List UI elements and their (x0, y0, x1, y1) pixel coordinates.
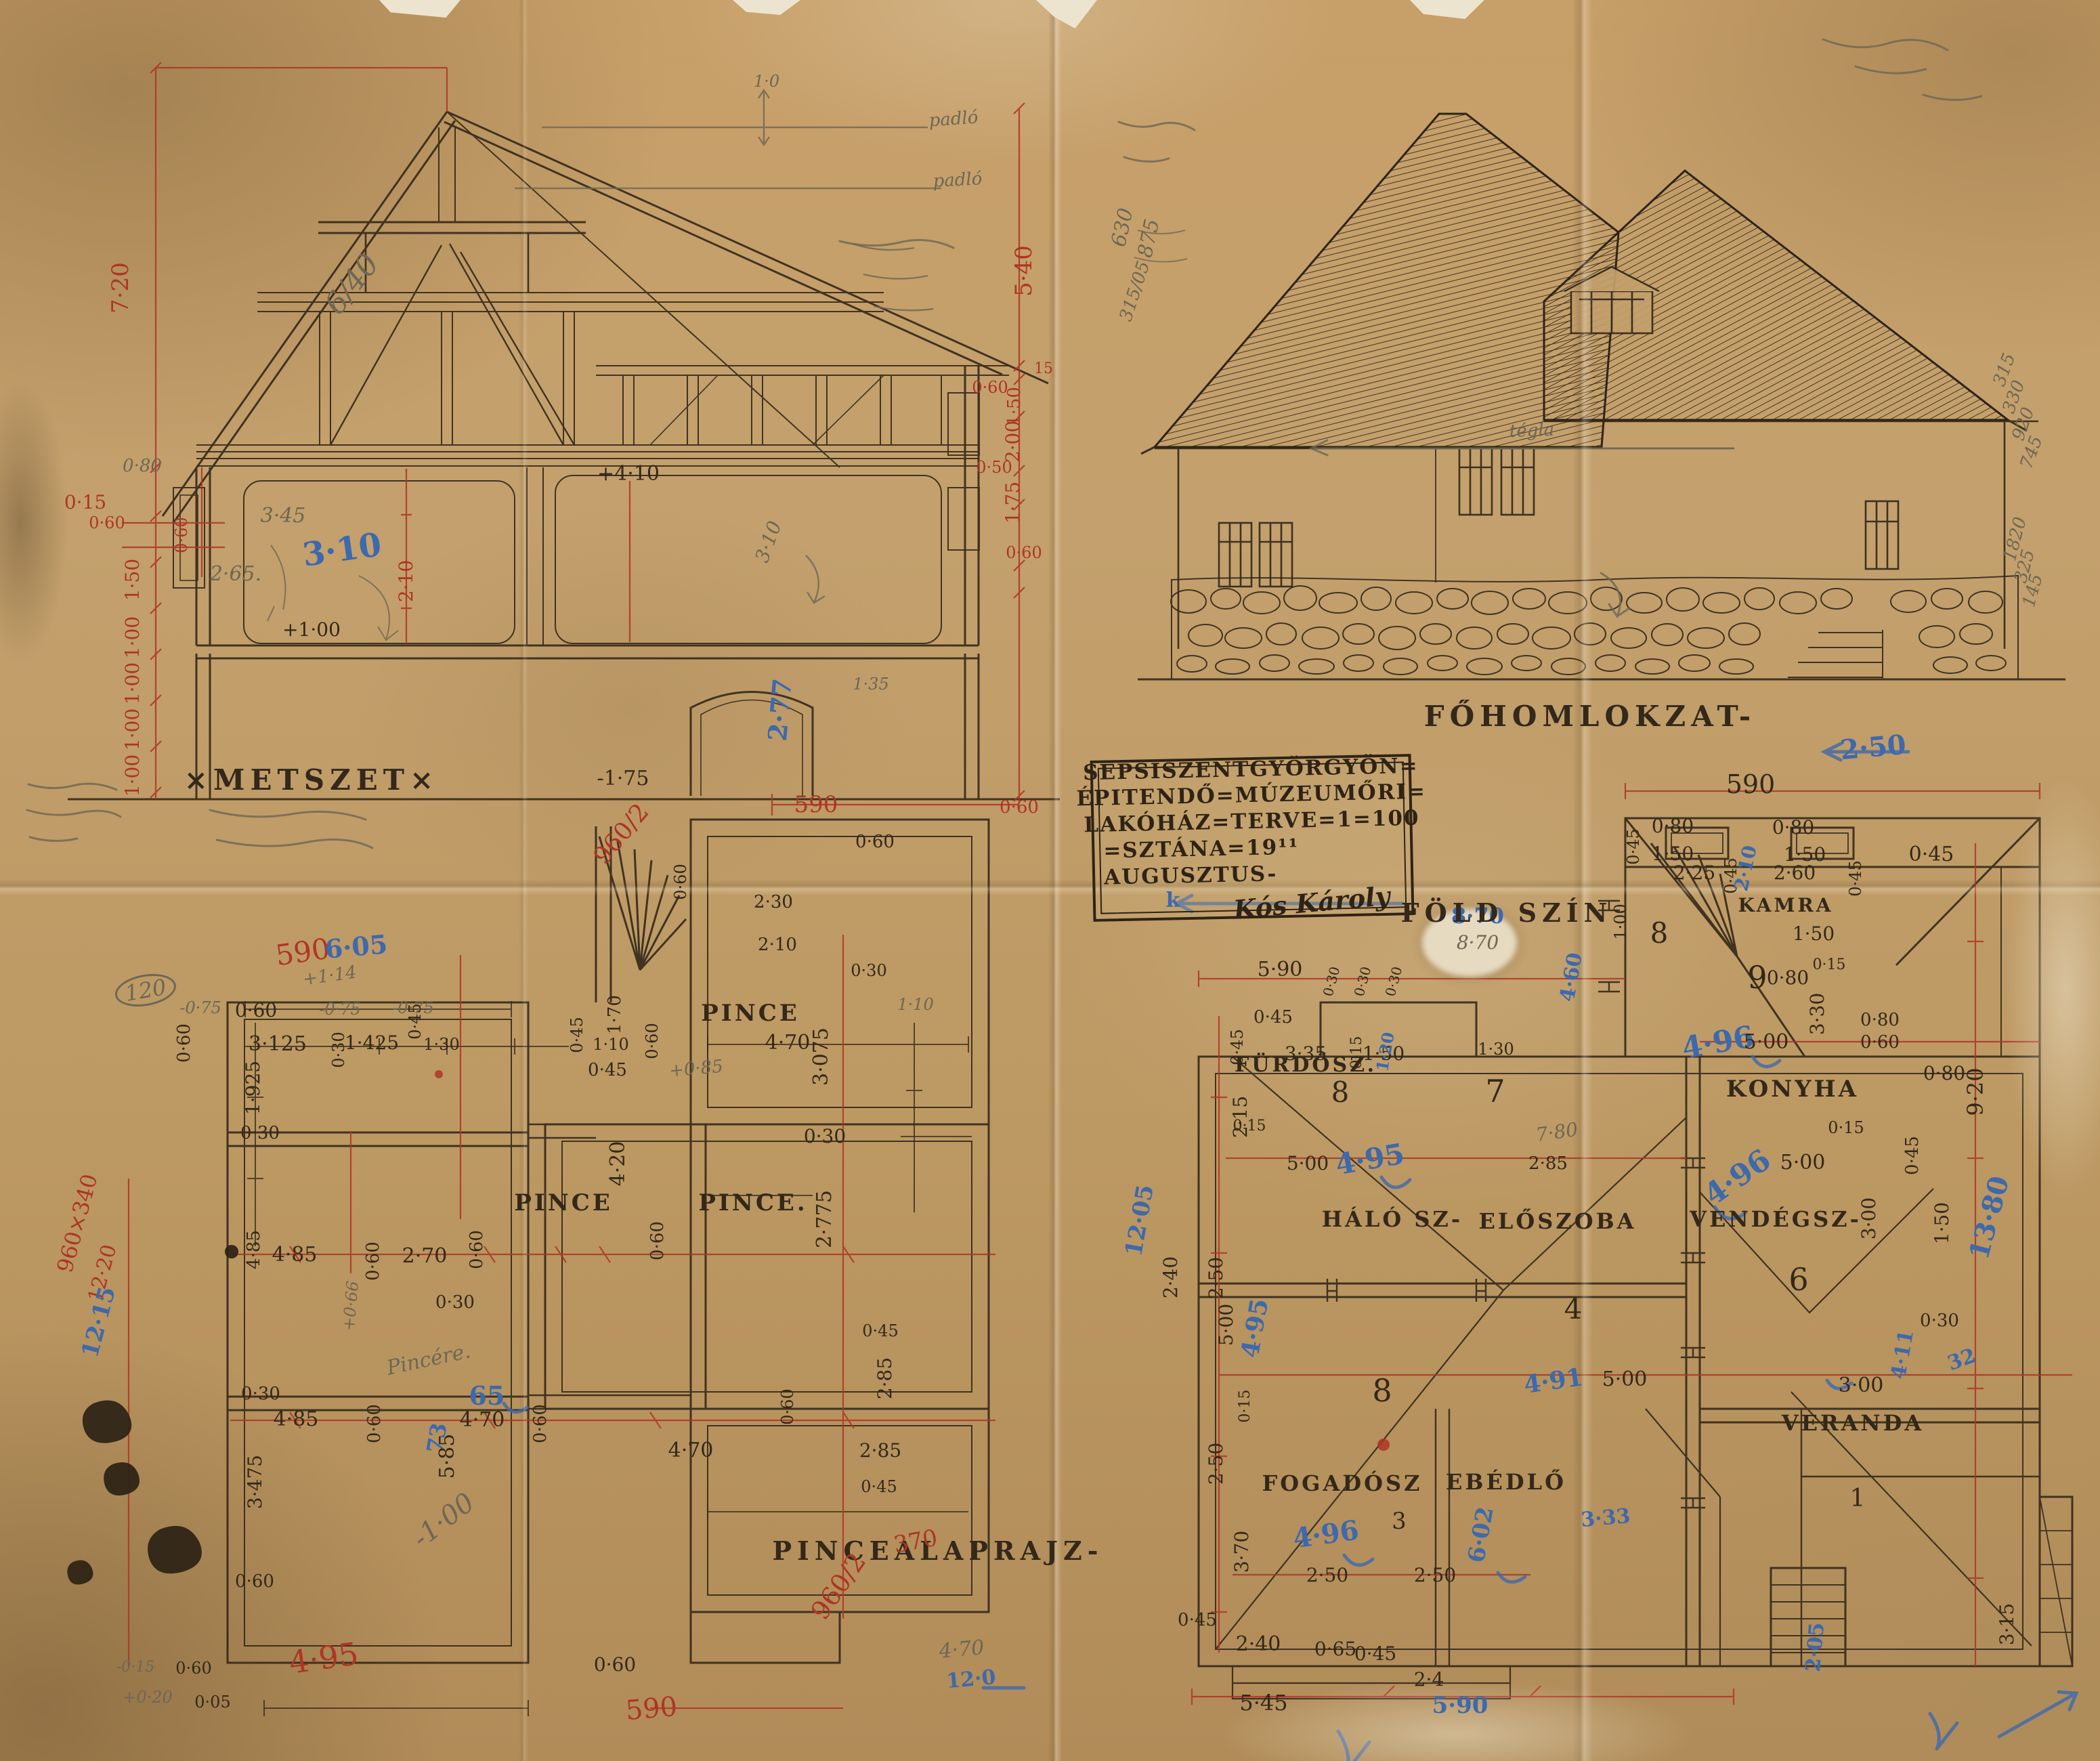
dim-annotation: 1·50 (1793, 925, 1835, 943)
dim-annotation: 4·70 (460, 1410, 505, 1430)
section-title-foldszin: FÖLD SZÍN (1401, 900, 1613, 926)
dim-annotation: 2·50 (1207, 1443, 1226, 1485)
room-label-ebedlo: EBÉDLŐ (1446, 1471, 1566, 1493)
dim-annotation: 3·475 (246, 1455, 265, 1509)
dim-annotation: 1·10 (897, 996, 933, 1013)
dim-annotation: 3 (1392, 1510, 1407, 1533)
dim-annotation: 8·70 (1457, 933, 1499, 952)
dim-annotation: 0·30 (241, 1385, 280, 1403)
dim-annotation: 1·00 (123, 755, 142, 797)
dim-annotation: 2·85 (876, 1357, 895, 1399)
dim-annotation: 2·4 (1414, 1670, 1444, 1689)
dim-annotation: +0·85 (668, 1058, 724, 1080)
dim-annotation: 0·50 (976, 459, 1012, 475)
dim-annotation: 0·45 (862, 1323, 898, 1339)
dim-annotation: 4·85 (245, 1230, 263, 1269)
dim-annotation: 15 (1034, 362, 1053, 377)
dim-annotation: 0·60 (1860, 1034, 1900, 1051)
dim-annotation: 0·60 (594, 1655, 636, 1674)
dim-annotation: 0·60 (235, 1001, 277, 1020)
dim-annotation: 0·60 (672, 864, 689, 899)
dim-annotation: 0·45 (1904, 1136, 1921, 1175)
section-title-metszet: ×METSZET× (184, 766, 439, 794)
room-label-pince-3: PINCE. (698, 1191, 807, 1214)
dim-annotation: -0·75 (319, 1001, 361, 1017)
dim-annotation: 2·50 (1207, 1257, 1226, 1299)
dim-annotation: 1·00 (1612, 904, 1629, 939)
dim-annotation: 4·20 (608, 1141, 628, 1187)
dim-annotation: 0·15 (64, 493, 106, 512)
dim-annotation: 1·70 (606, 995, 624, 1034)
dim-annotation: 3·35 (1285, 1044, 1327, 1063)
room-label-veranda: VERANDA (1782, 1412, 1924, 1434)
dim-annotation: 1·925 (244, 1061, 263, 1115)
dim-annotation: 1·50 (1933, 1202, 1952, 1244)
dim-annotation: 2·40 (1161, 1256, 1180, 1298)
dim-annotation: 2·10 (758, 936, 797, 954)
dim-annotation: padló (928, 108, 979, 129)
dim-annotation: 0·80 (1652, 817, 1694, 836)
dim-annotation: 2·10 (397, 560, 416, 602)
dim-annotation: 2·05 (1803, 1621, 1828, 1672)
dim-annotation: 8 (1650, 919, 1669, 948)
dim-annotation: 0·80 (123, 457, 162, 475)
dim-annotation: 3·00 (1860, 1197, 1879, 1239)
dim-annotation: 0·45 (1909, 845, 1954, 865)
dim-annotation: 1·10 (593, 1036, 628, 1053)
dim-annotation: 0·45 (1354, 1645, 1396, 1663)
dim-annotation: 0·45 (1253, 1009, 1293, 1026)
dim-annotation: 3·15 (1998, 1603, 2017, 1645)
dim-annotation: 1 (1850, 1487, 1866, 1511)
dim-annotation: 0·15 (1233, 1119, 1266, 1134)
dim-annotation: 0·80 (1767, 969, 1809, 988)
dim-annotation: 1·35 (853, 676, 888, 692)
dim-annotation: 9·20 (1965, 1067, 1986, 1116)
dim-annotation: 0·60 (644, 1023, 660, 1059)
dim-annotation: +0·66 (341, 1280, 361, 1331)
dim-annotation: 0·45 (861, 1479, 897, 1495)
dim-annotation: 0·15 (1238, 1390, 1253, 1423)
dim-annotation: 2·50 (1306, 1566, 1348, 1585)
dim-annotation: 5·00 (1217, 1304, 1236, 1346)
dim-annotation: 0·60 (972, 379, 1008, 396)
dim-annotation: 1·50 (123, 559, 142, 601)
dim-annotation: 1·00 (123, 616, 142, 658)
dim-annotation: 3·125 (249, 1034, 307, 1055)
dim-annotation: 1·30 (1478, 1041, 1514, 1057)
dim-annotation: 0·80 (1772, 818, 1814, 837)
dim-annotation: -0·15 (116, 1660, 154, 1675)
dim-annotation: 590 (624, 1693, 679, 1725)
dim-annotation: 4 (1564, 1295, 1583, 1323)
dim-annotation: 370 (892, 1527, 939, 1557)
dim-annotation: 2·775 (815, 1190, 835, 1248)
dim-annotation: 8 (1331, 1078, 1350, 1107)
title-block-inner: SEPSISZENTGYÖRGYÖN= ÉPITENDŐ=MÚZEUMŐRI= … (1098, 761, 1407, 914)
dim-annotation: 1·425 (345, 1034, 399, 1053)
drawing-sheet: SEPSISZENTGYÖRGYÖN= ÉPITENDŐ=MÚZEUMŐRI= … (0, 0, 2100, 1761)
dim-annotation: 2·30 (754, 893, 793, 911)
dim-annotation: 2·85 (859, 1441, 901, 1460)
dim-annotation: 1·00 (123, 662, 142, 704)
dim-annotation: 6·05 (324, 931, 389, 962)
dim-annotation: 0·60 (235, 1573, 274, 1590)
dim-annotation: 0·15 (1813, 958, 1846, 973)
dim-annotation: 0·60 (1000, 799, 1039, 816)
dim-annotation: 0·45 (407, 1003, 423, 1039)
dim-annotation: 65 (469, 1383, 505, 1409)
dim-annotation: 0·80 (1860, 1011, 1900, 1029)
dim-annotation: 0·05 (194, 1694, 230, 1710)
dim-annotation: 0·30 (1920, 1312, 1959, 1330)
dim-annotation: tégla (1509, 421, 1554, 440)
dim-annotation: +1·00 (282, 620, 341, 639)
dim-annotation: 5·40 (1012, 245, 1035, 297)
section-title-fohomlokzat: FŐHOMLOKZAT- (1424, 702, 1756, 731)
dim-annotation: 0·60 (366, 1404, 383, 1443)
dim-annotation: 2·50 (1414, 1566, 1456, 1585)
dim-annotation: padló (933, 170, 983, 190)
dim-annotation: 5·90 (1432, 1694, 1488, 1717)
dim-annotation: 0·60 (649, 1221, 666, 1260)
room-label-konyha: KONYHA (1726, 1078, 1859, 1101)
dim-annotation: 590 (274, 935, 331, 971)
dim-annotation: 5·85 (437, 1434, 458, 1479)
dim-annotation: 0·45 (569, 1017, 585, 1053)
dim-annotation: 0·60 (175, 1023, 193, 1063)
room-label-pince-1: PINCE (701, 1002, 800, 1025)
dim-annotation: 0·45 (1178, 1611, 1217, 1629)
dim-annotation: 590 (794, 793, 838, 816)
dim-annotation: 1·50 (1652, 845, 1694, 864)
dim-annotation: 7·80 (1535, 1120, 1579, 1145)
dim-annotation: 3·30 (1808, 993, 1827, 1035)
room-label-kamra: KAMRA (1738, 896, 1834, 915)
dim-annotation: 1·75 (1004, 482, 1023, 524)
room-label-vendegszoba: VENDÉGSZ- (1690, 1208, 1862, 1230)
dim-annotation: 0·45 (588, 1061, 627, 1079)
dim-annotation: 0·45 (1847, 860, 1864, 896)
dim-annotation: 2·85 (1528, 1155, 1568, 1172)
dim-annotation: 590 (1726, 771, 1776, 797)
dim-annotation: 1·00 (123, 708, 142, 750)
dim-annotation: k (1166, 891, 1180, 911)
dim-annotation: 1·0 (754, 73, 779, 89)
dim-annotation: 1·30 (423, 1036, 459, 1053)
title-block: SEPSISZENTGYÖRGYÖN= ÉPITENDŐ=MÚZEUMŐRI= … (1090, 754, 1415, 922)
dim-annotation: 9 (1747, 962, 1767, 993)
dim-annotation: 7·20 (109, 262, 132, 314)
dim-annotation: 2·25 (1673, 864, 1715, 883)
dim-annotation: 2·50 (1839, 731, 1908, 764)
dim-annotation: 0·30 (851, 962, 886, 979)
dim-annotation: 4·85 (274, 1409, 319, 1430)
dim-annotation: 8 (1372, 1375, 1392, 1406)
dim-annotation: 5·00 (1287, 1154, 1329, 1173)
dim-annotation: 0·45 (1229, 1029, 1245, 1065)
dim-annotation: 5·00 (1602, 1370, 1648, 1390)
dim-annotation: 0·60 (855, 833, 895, 851)
dim-annotation: 3·70 (1233, 1531, 1251, 1573)
dim-annotation: 2·00 (1004, 421, 1023, 463)
dim-annotation: 4·70 (938, 1638, 985, 1662)
dim-annotation: +4·10 (597, 464, 660, 484)
room-label-pince-2: PINCE (514, 1191, 613, 1214)
dim-annotation: 12·0 (945, 1668, 996, 1692)
dim-annotation: 0·60 (364, 1242, 382, 1281)
dim-annotation: 2·40 (1236, 1634, 1281, 1655)
dim-annotation: 0·60 (175, 1660, 211, 1676)
dim-annotation: 0·45 (1625, 828, 1642, 864)
dim-annotation: 0·15 (1350, 1036, 1365, 1069)
dim-annotation: 3·00 (1839, 1376, 1884, 1396)
dim-annotation: 0·60 (779, 1388, 796, 1424)
dim-annotation: 3·33 (1580, 1506, 1631, 1531)
dim-annotation: -0·75 (179, 1000, 221, 1016)
room-label-haloszoba: HÁLÓ SZ- (1322, 1208, 1463, 1230)
room-label-eloszoba: ELŐSZOBA (1479, 1210, 1637, 1232)
dim-annotation: 0·80 (1923, 1064, 1965, 1083)
dim-annotation: -1·75 (597, 769, 649, 789)
dim-annotation: 0·30 (804, 1127, 846, 1146)
dim-annotation: 5·00 (1780, 1153, 1826, 1173)
dim-annotation: +0·20 (123, 1689, 173, 1705)
dim-annotation: 7 (1485, 1076, 1505, 1107)
dim-annotation: 0·65 (1314, 1640, 1356, 1659)
dim-annotation: 4·85 (272, 1245, 318, 1265)
room-label-fogadoszoba: FOGADÓSZ (1262, 1472, 1423, 1494)
dim-annotation: 5·45 (1239, 1692, 1287, 1714)
dim-annotation: 0·30 (435, 1294, 475, 1311)
dim-annotation: 2·70 (402, 1246, 448, 1267)
title-line: =SZTÁNA=19¹¹ AUGUSZTUS- (1103, 832, 1402, 891)
dim-annotation: 0·60 (89, 515, 125, 531)
dim-annotation: 5·00 (1744, 1032, 1789, 1053)
dim-annotation: 0·60 (1006, 545, 1042, 561)
dim-annotation: 0·60 (468, 1230, 486, 1269)
dim-annotation: 4·70 (765, 1033, 811, 1053)
dim-annotation: 5·90 (1258, 960, 1303, 980)
dim-annotation: 3·45 (261, 506, 306, 526)
dim-annotation: 2·65. (210, 564, 261, 585)
dim-annotation: 6 (1788, 1264, 1808, 1295)
dim-annotation: 3·075 (811, 1027, 832, 1086)
dim-annotation: 4·70 (668, 1441, 714, 1461)
dim-annotation: 0·60 (173, 517, 190, 553)
dim-annotation: 2·60 (1774, 864, 1816, 883)
dim-annotation: 0·15 (1828, 1120, 1864, 1136)
dim-annotation: 0·30 (240, 1124, 280, 1142)
dim-annotation: 2·77 (765, 677, 796, 742)
dim-annotation: 4·95 (287, 1638, 360, 1678)
dim-annotation: 0·60 (532, 1404, 549, 1443)
